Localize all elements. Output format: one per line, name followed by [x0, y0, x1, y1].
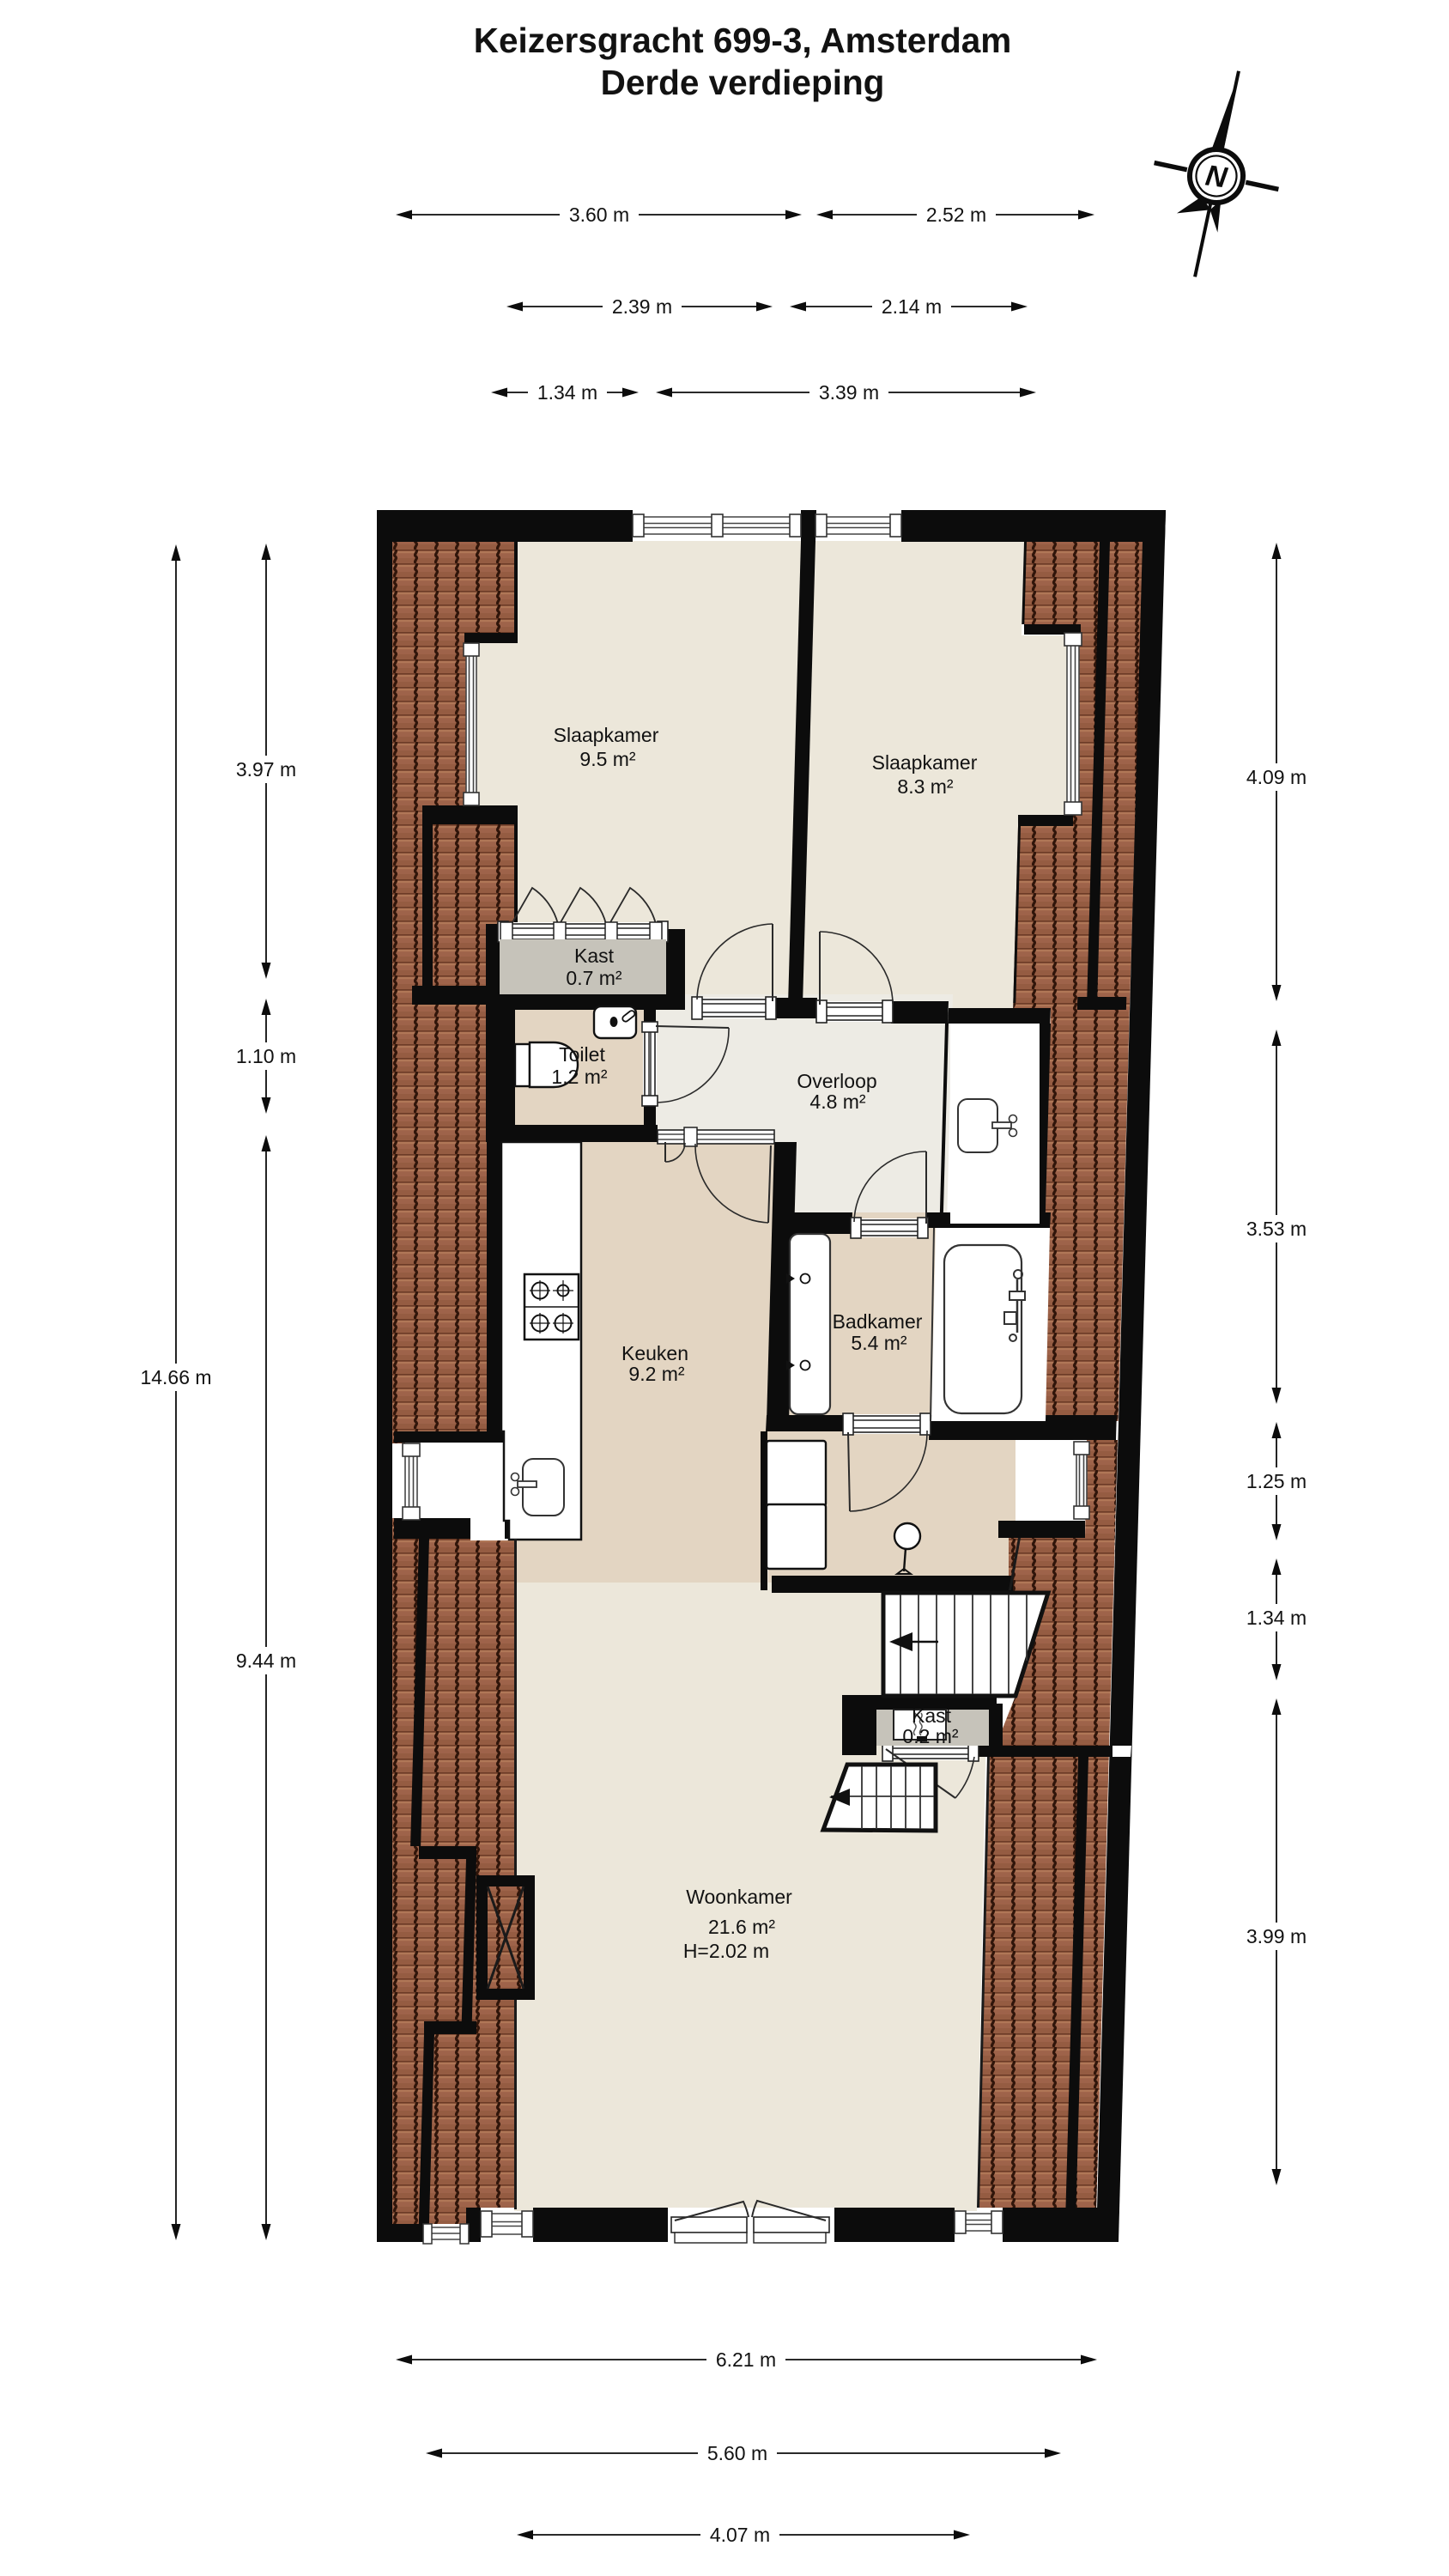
- svg-text:3.39 m: 3.39 m: [819, 381, 879, 404]
- svg-text:1.34 m: 1.34 m: [537, 381, 597, 404]
- svg-text:0.7 m²: 0.7 m²: [566, 967, 622, 989]
- svg-text:Toilet: Toilet: [559, 1043, 605, 1066]
- svg-text:1.34 m: 1.34 m: [1246, 1607, 1307, 1629]
- svg-text:Keizersgracht 699-3, Amsterdam: Keizersgracht 699-3, Amsterdam: [474, 21, 1012, 60]
- svg-text:8.3 m²: 8.3 m²: [897, 775, 954, 798]
- svg-text:21.6 m²: 21.6 m²: [708, 1916, 775, 1938]
- svg-text:9.2 m²: 9.2 m²: [628, 1363, 685, 1385]
- svg-text:Slaapkamer: Slaapkamer: [554, 724, 659, 746]
- svg-text:5.4 m²: 5.4 m²: [851, 1332, 907, 1354]
- svg-text:3.97 m: 3.97 m: [236, 758, 296, 781]
- svg-text:2.52 m: 2.52 m: [926, 204, 986, 226]
- svg-text:Badkamer: Badkamer: [833, 1310, 923, 1333]
- svg-text:4.8 m²: 4.8 m²: [809, 1091, 866, 1113]
- svg-text:Woonkamer: Woonkamer: [686, 1886, 792, 1908]
- svg-text:1.2 m²: 1.2 m²: [551, 1066, 608, 1088]
- svg-text:0.2 m²: 0.2 m²: [902, 1725, 959, 1747]
- svg-text:4.07 m: 4.07 m: [710, 2524, 770, 2546]
- svg-text:Keuken: Keuken: [621, 1342, 688, 1364]
- svg-text:3.99 m: 3.99 m: [1246, 1925, 1307, 1947]
- svg-text:Derde verdieping: Derde verdieping: [601, 63, 885, 102]
- svg-text:2.39 m: 2.39 m: [612, 295, 672, 318]
- svg-text:2.14 m: 2.14 m: [882, 295, 942, 318]
- svg-text:9.5 m²: 9.5 m²: [579, 748, 636, 770]
- svg-text:14.66 m: 14.66 m: [140, 1366, 211, 1388]
- svg-text:Overloop: Overloop: [797, 1070, 876, 1092]
- svg-text:3.60 m: 3.60 m: [569, 204, 629, 226]
- svg-text:H=2.02 m: H=2.02 m: [683, 1940, 769, 1962]
- svg-text:1.10 m: 1.10 m: [236, 1045, 296, 1067]
- svg-text:Kast: Kast: [574, 945, 615, 967]
- svg-text:4.09 m: 4.09 m: [1246, 766, 1307, 788]
- svg-text:1.25 m: 1.25 m: [1246, 1470, 1307, 1492]
- svg-text:Kast: Kast: [912, 1704, 952, 1727]
- svg-text:Slaapkamer: Slaapkamer: [872, 751, 978, 774]
- svg-text:5.60 m: 5.60 m: [707, 2442, 767, 2464]
- svg-text:6.21 m: 6.21 m: [716, 2348, 776, 2371]
- svg-text:3.53 m: 3.53 m: [1246, 1218, 1307, 1240]
- svg-text:9.44 m: 9.44 m: [236, 1649, 296, 1672]
